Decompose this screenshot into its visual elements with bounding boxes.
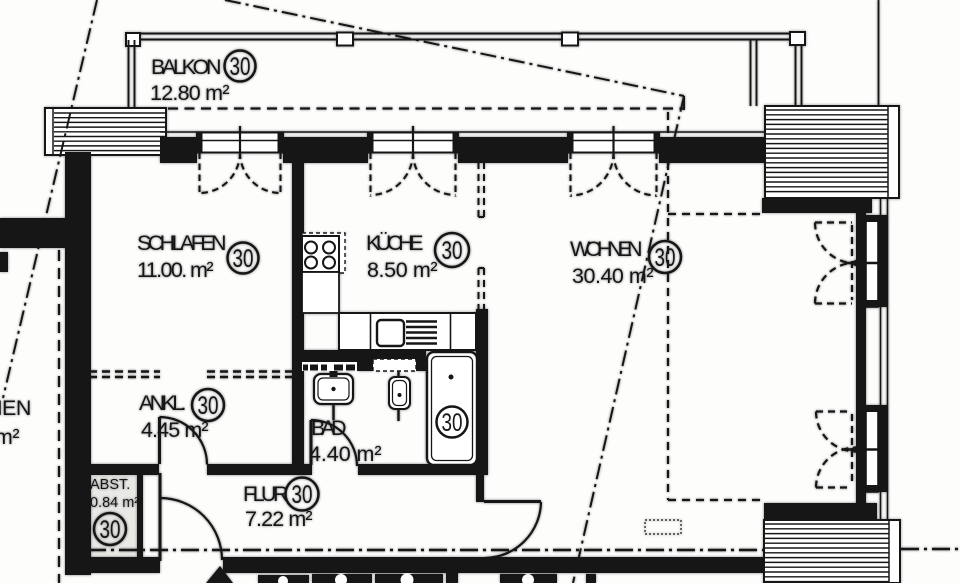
svg-text:30: 30 bbox=[100, 516, 121, 544]
svg-text:4.40 m²: 4.40 m² bbox=[309, 442, 381, 466]
svg-text:ABST.: ABST. bbox=[90, 477, 130, 493]
svg-text:8.50 m²: 8.50 m² bbox=[367, 258, 437, 282]
svg-text:ANKL.: ANKL. bbox=[139, 391, 186, 415]
svg-text:FLUR: FLUR bbox=[243, 482, 288, 506]
svg-text:WOHNEN: WOHNEN bbox=[570, 237, 642, 261]
svg-text:30: 30 bbox=[442, 237, 463, 265]
svg-text:11.00. m²: 11.00. m² bbox=[137, 258, 213, 282]
svg-text:30.40 m²: 30.40 m² bbox=[572, 264, 653, 288]
svg-text:12.80 m²: 12.80 m² bbox=[150, 81, 229, 105]
svg-text:30: 30 bbox=[233, 245, 254, 273]
svg-text:30: 30 bbox=[198, 392, 219, 420]
svg-text:30: 30 bbox=[442, 409, 463, 437]
svg-text:BALKON: BALKON bbox=[151, 55, 221, 79]
svg-text:SCHLAFEN: SCHLAFEN bbox=[137, 231, 226, 255]
svg-text:0 m²: 0 m² bbox=[0, 425, 19, 449]
svg-text:0.84 m²: 0.84 m² bbox=[90, 495, 139, 511]
svg-text:KÜCHE: KÜCHE bbox=[366, 231, 423, 255]
svg-text:30: 30 bbox=[230, 53, 251, 81]
svg-text:HNEN: HNEN bbox=[0, 396, 31, 420]
svg-text:30: 30 bbox=[655, 244, 676, 272]
svg-text:30: 30 bbox=[292, 481, 313, 509]
svg-text:7.22 m²: 7.22 m² bbox=[245, 507, 312, 531]
